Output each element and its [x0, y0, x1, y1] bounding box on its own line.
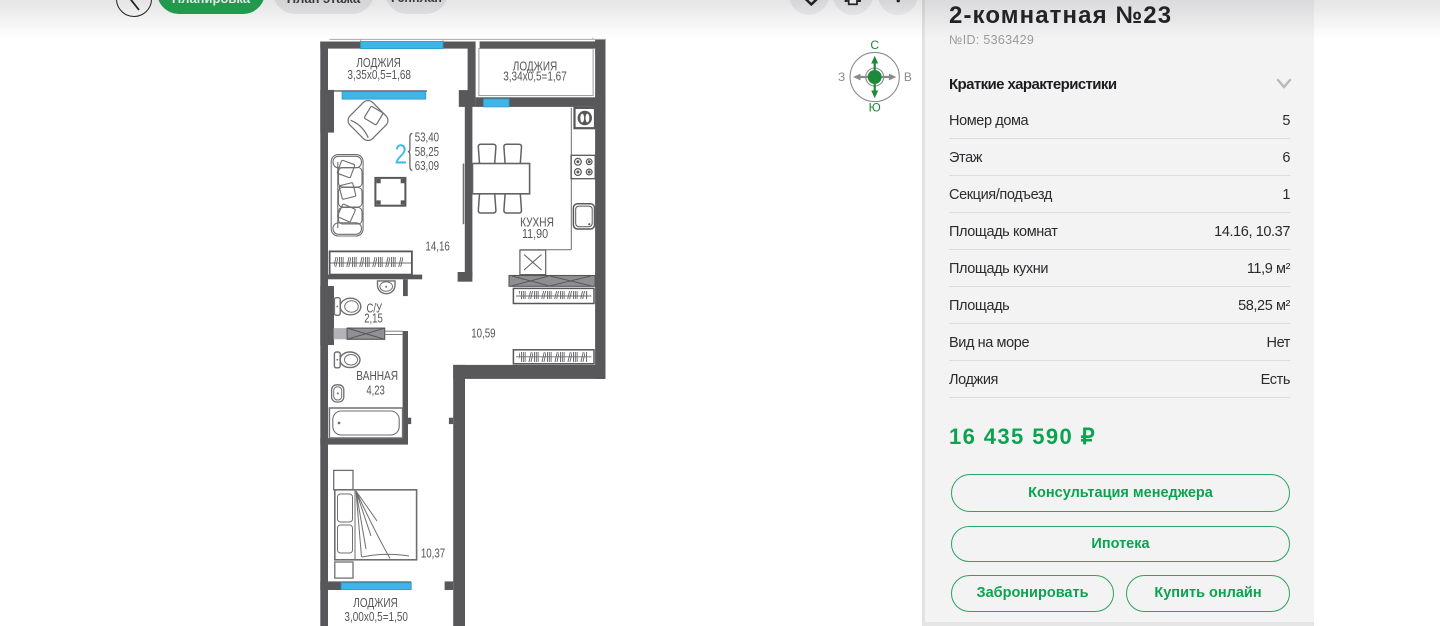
svg-text:4,23: 4,23 — [366, 384, 384, 398]
svg-text:3,00х0,5=1,50: 3,00х0,5=1,50 — [344, 611, 408, 624]
svg-text:53,40: 53,40 — [415, 132, 439, 145]
svg-text:ВАННАЯ: ВАННАЯ — [356, 370, 398, 383]
svg-text:ЛОДЖИЯ: ЛОДЖИЯ — [353, 597, 397, 610]
svg-text:Ю: Ю — [869, 101, 881, 115]
svg-text:14,16: 14,16 — [425, 240, 449, 253]
svg-text:2: 2 — [395, 140, 408, 171]
svg-text:3,35х0,5=1,68: 3,35х0,5=1,68 — [347, 69, 411, 82]
svg-text:3,34х0,5=1,67: 3,34х0,5=1,67 — [503, 70, 567, 83]
svg-text:11,90: 11,90 — [522, 227, 549, 241]
svg-text:63,09: 63,09 — [415, 160, 439, 173]
svg-text:10,59: 10,59 — [471, 327, 495, 340]
svg-text:58,25: 58,25 — [415, 146, 439, 159]
svg-text:2,15: 2,15 — [364, 312, 382, 326]
svg-text:В: В — [904, 70, 912, 84]
svg-text:С: С — [870, 38, 879, 52]
svg-text:10,37: 10,37 — [421, 548, 445, 561]
svg-text:З: З — [838, 70, 845, 84]
